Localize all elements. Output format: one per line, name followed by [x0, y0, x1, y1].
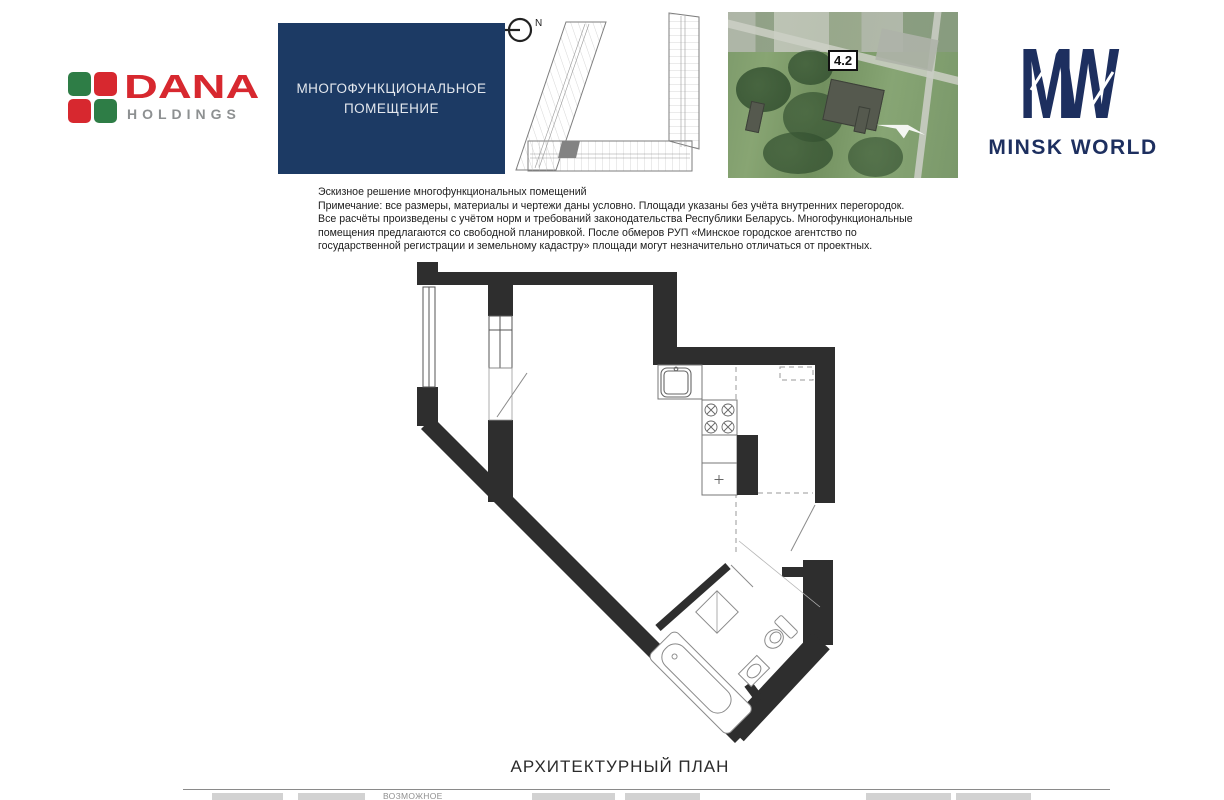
legend-box	[212, 793, 283, 800]
walls	[417, 262, 835, 645]
bathroom-sink	[738, 655, 769, 686]
legend-box	[866, 793, 951, 800]
legend-box	[298, 793, 365, 800]
legend-box	[956, 793, 1031, 800]
plan-caption: АРХИТЕКТУРНЫЙ ПЛАН	[405, 757, 835, 777]
loggia-window	[423, 287, 435, 387]
legend-label: ВОЗМОЖНОЕ	[383, 791, 443, 800]
diagonal-walls	[427, 423, 821, 737]
bathroom-door-swing	[731, 565, 753, 587]
footer-rule	[183, 789, 1110, 790]
door-swings	[497, 373, 820, 607]
toilet	[758, 615, 798, 655]
balcony-door-window	[489, 316, 512, 420]
kitchen-pillar	[737, 435, 758, 495]
brochure-page: DANA HOLDINGS МНОГОФУНКЦИОНАЛЬНОЕ ПОМЕЩЕ…	[0, 0, 1224, 800]
legend-box	[625, 793, 700, 800]
legend-box	[532, 793, 615, 800]
floor-plan-drawing	[0, 0, 1224, 800]
washing-machine	[696, 591, 738, 633]
entrance-door-swing	[791, 505, 815, 551]
bathtub	[648, 630, 754, 736]
